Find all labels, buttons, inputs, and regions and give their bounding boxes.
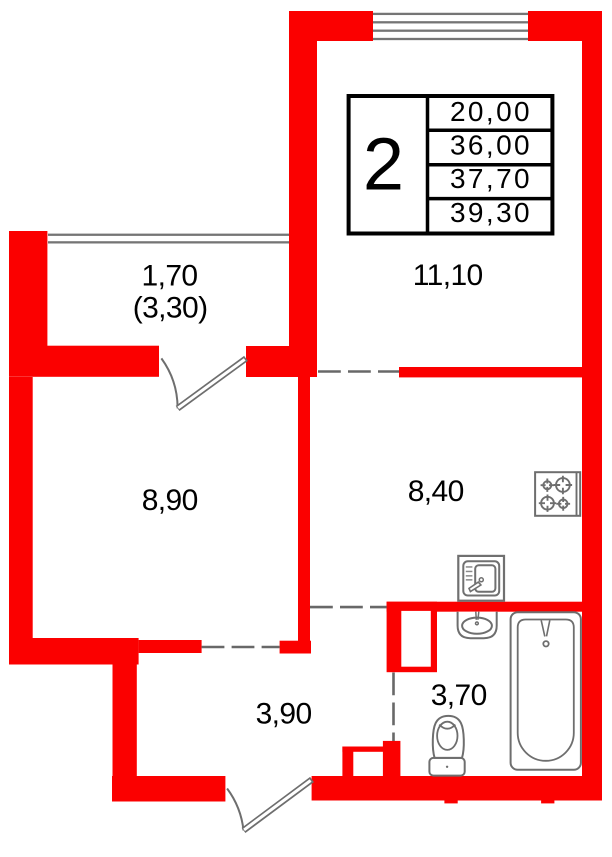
svg-text:39,30: 39,30 [450, 197, 532, 228]
svg-text:8,90: 8,90 [142, 484, 198, 517]
svg-text:11,10: 11,10 [413, 259, 483, 292]
svg-text:36,00: 36,00 [450, 130, 532, 161]
svg-text:2: 2 [363, 122, 404, 205]
svg-text:1,70: 1,70 [142, 259, 198, 292]
svg-text:3,90: 3,90 [256, 697, 312, 730]
svg-text:37,70: 37,70 [450, 163, 532, 194]
svg-text:(3,30): (3,30) [133, 292, 208, 325]
svg-text:20,00: 20,00 [450, 96, 532, 127]
svg-text:8,40: 8,40 [408, 475, 464, 508]
svg-text:3,70: 3,70 [431, 679, 487, 712]
